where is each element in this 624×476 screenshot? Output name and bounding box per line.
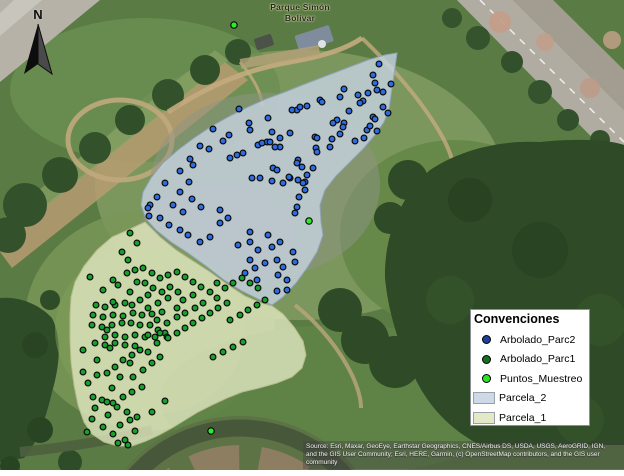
arbolado_parc1-point [129,389,135,395]
attribution-text: Source: Esri, Maxar, GeoEye, Earthstar G… [303,441,624,469]
arbolado_parc2-point [297,104,303,110]
arbolado_parc2-point [367,123,373,129]
arbolado_parc1-point [190,279,196,285]
arbolado_parc2-point [217,207,223,213]
arbolado_parc1-point [210,354,216,360]
arbolado_parc1-point [80,369,86,375]
legend-item-label: Arbolado_Parc1 [500,353,575,365]
arbolado_parc1-point [128,320,134,326]
arbolado_parc1-point [230,280,236,286]
arbolado_parc1-point [122,300,128,306]
arbolado_parc2-point [247,127,253,133]
arbolado_parc1-point [100,424,106,430]
arbolado_parc2-point [166,222,172,228]
arbolado_parc1-point [149,360,155,366]
arbolado_parc1-point [124,270,130,276]
arbolado_parc2-point [269,178,275,184]
attribution-line: community [306,459,621,467]
arbolado_parc1-point [132,428,138,434]
arbolado_parc2-point [185,232,191,238]
arbolado_parc1-point [119,249,125,255]
north-arrow: N [16,8,60,80]
arbolado_parc2-point [314,135,320,141]
arbolado_parc1-point [165,295,171,301]
arbolado_parc2-point [361,135,367,141]
legend-item-puntos-muestreo: Puntos_Muestreo [471,369,589,389]
arbolado_parc1-point [157,330,163,336]
arbolado_parc1-point [230,344,236,350]
arbolado_parc1-point [150,285,156,291]
arbolado_parc2-point [388,81,394,87]
arbolado_parc1-point [199,315,205,321]
arbolado_parc2-point [210,126,216,132]
arbolado_parc1-point [174,330,180,336]
arbolado_parc2-point [265,232,271,238]
arbolado_parc2-point [226,132,232,138]
arbolado_parc1-point [119,320,125,326]
arbolado_parc2-point [247,229,253,235]
arbolado_parc1-point [109,385,115,391]
arbolado_parc2-point [304,172,310,178]
arbolado_parc1-point [190,292,196,298]
arbolado_parc2-point [346,108,352,114]
arbolado_parc1-point [147,322,153,328]
arbolado_parc2-point [304,103,310,109]
arbolado_parc1-point [214,280,220,286]
arbolado_parc2-point [296,194,302,200]
arbolado_parc1-point [152,334,158,340]
point-marker-icon [482,335,491,344]
arbolado_parc2-point [380,104,386,110]
arbolado_parc2-point [269,244,275,250]
arbolado_parc1-point [93,302,99,308]
point-marker-icon [482,355,491,364]
arbolado_parc2-point [374,128,380,134]
arbolado_parc1-point [245,307,251,313]
arbolado_parc1-point [145,305,151,311]
arbolado_parc2-point [287,130,293,136]
arbolado_parc2-point [355,92,361,98]
document-page: Parque Simón Bolívar N Convenciones Arbo… [0,0,624,476]
arbolado_parc1-point [182,310,188,316]
arbolado_parc1-point [164,320,170,326]
arbolado_parc1-point [120,313,126,319]
arbolado_parc1-point [125,257,131,263]
arbolado_parc2-point [357,100,363,106]
arbolado_parc1-point [149,311,155,317]
arbolado_parc1-point [182,325,188,331]
arbolado_parc2-point [154,194,160,200]
arbolado_parc1-point [120,394,126,400]
arbolado_parc2-point [247,257,253,263]
arbolado_parc1-point [105,412,111,418]
arbolado_parc1-point [215,305,221,311]
arbolado_parc1-point [124,409,130,415]
arbolado_parc2-point [252,265,258,271]
arbolado_parc2-point [246,120,252,126]
arbolado_parc2-point [197,143,203,149]
arbolado_parc2-point [294,160,300,166]
arbolado_parc1-point [239,275,245,281]
arbolado_parc1-point [154,340,160,346]
arbolado_parc2-point [217,220,223,226]
arbolado_parc1-point [80,347,86,353]
arbolado_parc1-point [220,349,226,355]
arbolado_parc1-point [112,364,118,370]
arbolado_parc1-point [94,357,100,363]
polygon-swatch-icon [473,392,495,404]
arbolado_parc2-point [319,99,325,105]
legend-box: Convenciones Arbolado_Parc2 Arbolado_Par… [470,309,590,426]
arbolado_parc1-point [122,342,128,348]
arbolado_parc1-point [109,322,115,328]
arbolado_parc1-point [174,314,180,320]
arbolado_parc2-point [220,138,226,144]
point-marker-icon [482,374,491,383]
legend-item-arbolado-parc1: Arbolado_Parc1 [471,350,589,370]
arbolado_parc2-point [177,189,183,195]
legend-item-label: Arbolado_Parc2 [500,334,575,346]
arbolado_parc2-point [376,61,382,67]
arbolado_parc1-point [129,352,135,358]
arbolado_parc1-point [154,317,160,323]
arbolado_parc1-point [104,370,110,376]
arbolado_parc2-point [272,144,278,150]
arbolado_parc1-point [207,310,213,316]
arbolado_parc2-point [240,150,246,156]
arbolado_parc2-point [284,277,290,283]
arbolado_parc2-point [145,205,151,211]
map-frame[interactable]: Parque Simón Bolívar N Convenciones Arbo… [0,0,624,470]
arbolado_parc1-point [174,269,180,275]
arbolado_parc1-point [120,357,126,363]
arbolado_parc2-point [262,260,268,266]
arbolado_parc2-point [290,249,296,255]
arbolado_parc2-point [337,94,343,100]
arbolado_parc2-point [300,180,306,186]
arbolado_parc1-point [117,374,123,380]
arbolado_parc2-point [374,87,380,93]
arbolado_parc2-point [236,106,242,112]
arbolado_parc2-point [177,168,183,174]
arbolado_parc1-point [130,310,136,316]
arbolado_parc1-point [175,289,181,295]
arbolado_parc1-point [125,442,131,448]
arbolado_parc1-point [84,429,90,435]
arbolado_parc2-point [372,80,378,86]
arbolado_parc2-point [341,86,347,92]
arbolado_parc1-point [114,404,120,410]
arbolado_parc1-point [157,275,163,281]
arbolado_parc1-point [165,272,171,278]
arbolado_parc2-point [249,175,255,181]
arbolado_parc2-point [186,179,192,185]
arbolado_parc1-point [132,343,138,349]
arbolado_parc2-point [286,174,292,180]
arbolado_parc2-point [254,277,260,283]
arbolado_parc2-point [329,136,335,142]
arbolado_parc1-point [90,312,96,318]
arbolado_parc2-point [385,110,391,116]
arbolado_parc1-point [127,289,133,295]
arbolado_parc2-point [207,234,213,240]
arbolado_parc1-point [122,334,128,340]
puntos_muestreo-point [231,22,237,28]
legend-item-label: Parcela_2 [499,392,546,404]
arbolado_parc2-point [247,239,253,245]
arbolado_parc2-point [190,162,196,168]
arbolado_parc2-point [255,247,261,253]
arbolado_parc1-point [127,230,133,236]
arbolado_parc2-point [274,167,280,173]
legend-item-parcela-1: Parcela_1 [471,408,589,428]
arbolado_parc1-point [182,274,188,280]
arbolado_parc1-point [104,399,110,405]
arbolado_parc2-point [227,155,233,161]
arbolado_parc2-point [162,180,168,186]
arbolado_parc1-point [198,284,204,290]
arbolado_parc2-point [310,165,316,171]
arbolado_parc2-point [330,120,336,126]
arbolado_parc1-point [92,340,98,346]
arbolado_parc1-point [255,285,261,291]
arbolado_parc1-point [110,299,116,305]
arbolado_parc1-point [180,297,186,303]
arbolado_parc1-point [110,431,116,437]
arbolado_parc2-point [277,135,283,141]
arbolado_parc2-point [302,187,308,193]
arbolado_parc1-point [102,304,108,310]
arbolado_parc1-point [157,354,163,360]
arbolado_parc1-point [130,374,136,380]
arbolado_parc2-point [292,210,298,216]
arbolado_parc1-point [112,332,118,338]
arbolado_parc1-point [222,285,228,291]
north-arrow-label: N [16,8,60,22]
arbolado_parc2-point [280,264,286,270]
arbolado_parc1-point [134,240,140,246]
arbolado_parc2-point [177,227,183,233]
arbolado_parc2-point [235,242,241,248]
attribution-line: and the GIS User Community; Esri, HERE, … [306,451,621,459]
map-label-line2: Bolívar [252,13,348,24]
arbolado_parc1-point [137,322,143,328]
arbolado_parc1-point [139,312,145,318]
arbolado_parc2-point [277,239,283,245]
arbolado_parc1-point [89,322,95,328]
north-arrow-icon [16,22,60,78]
arbolado_parc2-point [206,146,212,152]
arbolado_parc1-point [149,409,155,415]
arbolado_parc2-point [337,131,343,137]
arbolado_parc1-point [167,284,173,290]
map-label-parque: Parque Simón Bolívar [252,2,348,24]
arbolado_parc2-point [292,259,298,265]
arbolado_parc1-point [254,302,260,308]
arbolado_parc1-point [227,317,233,323]
arbolado_parc1-point [85,380,91,386]
arbolado_parc2-point [370,72,376,78]
arbolado_parc2-point [198,204,204,210]
puntos_muestreo-point [208,428,214,434]
arbolado_parc2-point [280,180,286,186]
arbolado_parc1-point [132,332,138,338]
legend-title: Convenciones [474,312,589,326]
arbolado_parc1-point [174,305,180,311]
arbolado_parc1-point [149,270,155,276]
arbolado_parc1-point [145,349,151,355]
arbolado_parc1-point [165,335,171,341]
arbolado_parc1-point [224,300,230,306]
arbolado_parc2-point [274,288,280,294]
arbolado_parc2-point [197,239,203,245]
arbolado_parc1-point [207,289,213,295]
arbolado_parc2-point [314,149,320,155]
puntos_muestreo-point [306,218,312,224]
arbolado_parc1-point [247,280,253,286]
arbolado_parc1-point [240,339,246,345]
arbolado_parc1-point [237,312,243,318]
arbolado_parc1-point [159,309,165,315]
polygon-swatch-icon [473,412,495,424]
arbolado_parc1-point [162,398,168,404]
arbolado_parc1-point [104,327,110,333]
arbolado_parc2-point [146,213,152,219]
arbolado_parc2-point [380,89,386,95]
arbolado_parc2-point [340,124,346,130]
arbolado_parc2-point [275,272,281,278]
arbolado_parc1-point [145,332,151,338]
arbolado_parc2-point [274,257,280,263]
arbolado_parc2-point [289,107,295,113]
legend-item-label: Puntos_Muestreo [500,373,582,385]
arbolado_parc2-point [365,90,371,96]
arbolado_parc2-point [225,215,231,221]
arbolado_parc1-point [127,360,133,366]
arbolado_parc1-point [112,340,118,346]
arbolado_parc1-point [110,277,116,283]
arbolado_parc1-point [92,405,98,411]
arbolado_parc2-point [257,175,263,181]
arbolado_parc1-point [159,289,165,295]
arbolado_parc1-point [90,394,96,400]
arbolado_parc1-point [87,274,93,280]
arbolado_parc2-point [259,140,265,146]
arbolado_parc1-point [132,267,138,273]
arbolado_parc1-point [139,384,145,390]
arbolado_parc1-point [127,417,133,423]
arbolado_parc1-point [262,297,268,303]
arbolado_parc1-point [145,292,151,298]
arbolado_parc2-point [372,116,378,122]
arbolado_parc1-point [214,295,220,301]
arbolado_parc1-point [134,279,140,285]
arbolado_parc1-point [110,312,116,318]
arbolado_parc2-point [284,287,290,293]
legend-item-label: Parcela_1 [499,412,546,424]
arbolado_parc2-point [234,152,240,158]
arbolado_parc1-point [140,265,146,271]
arbolado_parc2-point [170,202,176,208]
arbolado_parc1-point [115,282,121,288]
arbolado_parc2-point [299,164,305,170]
arbolado_parc1-point [137,347,143,353]
arbolado_parc1-point [117,422,123,428]
arbolado_parc2-point [352,138,358,144]
arbolado_parc1-point [100,314,106,320]
arbolado_parc2-point [294,204,300,210]
legend-item-arbolado-parc2: Arbolado_Parc2 [471,330,589,350]
arbolado_parc1-point [115,440,121,446]
arbolado_parc2-point [267,139,273,145]
arbolado_parc1-point [94,372,100,378]
arbolado_parc2-point [187,156,193,162]
arbolado_parc2-point [189,196,195,202]
arbolado_parc1-point [102,334,108,340]
arbolado_parc1-point [192,305,198,311]
arbolado_parc2-point [157,215,163,221]
arbolado_parc1-point [142,280,148,286]
arbolado_parc2-point [265,115,271,121]
page-margin [0,470,624,476]
arbolado_parc2-point [180,209,186,215]
arbolado_parc2-point [327,144,333,150]
arbolado_parc1-point [134,414,140,420]
arbolado_parc1-point [89,416,95,422]
arbolado_parc1-point [200,300,206,306]
arbolado_parc1-point [100,287,106,293]
arbolado_parc1-point [190,320,196,326]
arbolado_parc1-point [107,345,113,351]
attribution-line: Source: Esri, Maxar, GeoEye, Earthstar G… [306,443,621,451]
arbolado_parc1-point [155,300,161,306]
arbolado_parc1-point [137,297,143,303]
arbolado_parc1-point [140,367,146,373]
arbolado_parc1-point [129,302,135,308]
map-label-line1: Parque Simón [252,2,348,13]
arbolado_parc2-point [269,129,275,135]
legend-item-parcela-2: Parcela_2 [471,389,589,409]
